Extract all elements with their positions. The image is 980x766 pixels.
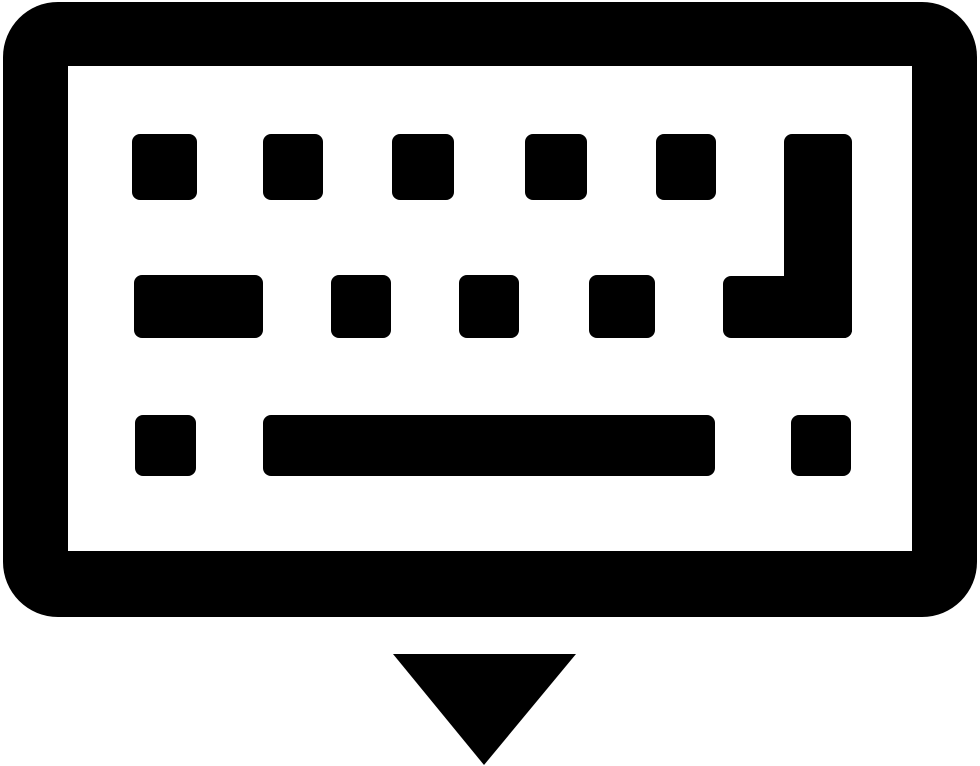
- down-triangle-icon: [393, 654, 576, 765]
- key: [459, 275, 519, 338]
- wide-key: [134, 275, 263, 338]
- key: [791, 415, 851, 476]
- key: [656, 134, 716, 200]
- keyboard-hide-icon-svg: [0, 0, 980, 766]
- keyboard-hide-icon: [0, 0, 980, 766]
- key: [135, 415, 196, 476]
- key: [263, 134, 323, 200]
- key: [589, 275, 655, 338]
- key: [132, 134, 197, 200]
- spacebar-key: [263, 415, 715, 476]
- key: [392, 134, 454, 200]
- key: [331, 275, 391, 338]
- hide-arrow-icon: [393, 654, 576, 765]
- key: [525, 134, 587, 200]
- enter-key-foot: [723, 276, 852, 338]
